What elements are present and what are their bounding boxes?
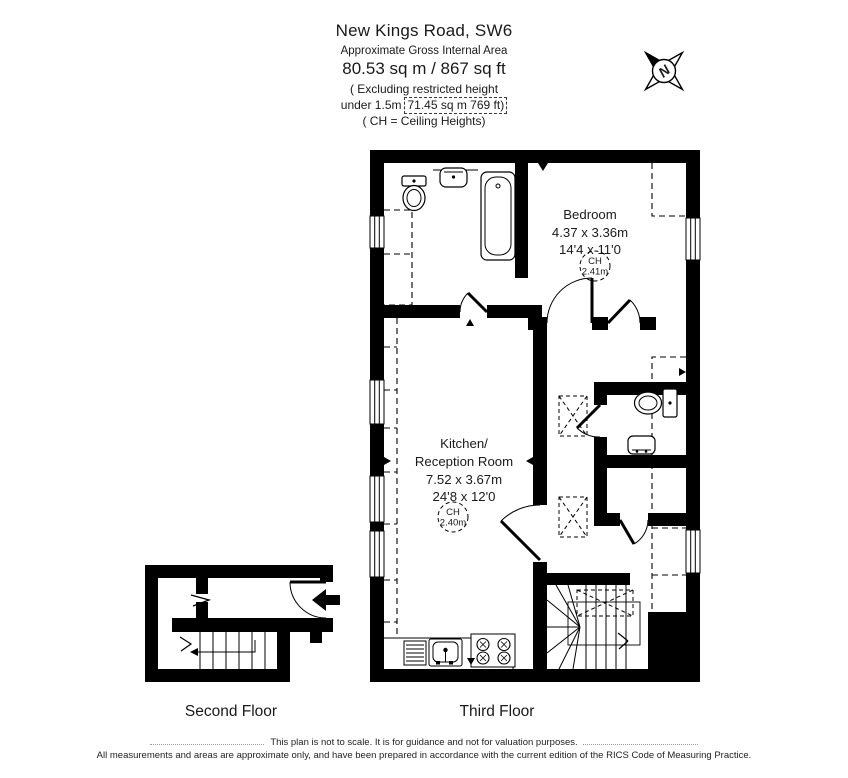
kitchen-dimensions-metric: 7.52 x 3.67m [426, 472, 502, 487]
window-icon [370, 216, 384, 248]
plan-header: New Kings Road, SW6 Approximate Gross In… [0, 21, 848, 129]
svg-text:CH: CH [588, 256, 602, 267]
second-floor-plan [145, 565, 340, 682]
disclaimer-line2: All measurements and areas are approxima… [0, 749, 848, 762]
lobby-door [608, 300, 640, 323]
window-icon [370, 531, 384, 577]
bathroom-fixtures [402, 168, 515, 260]
basin-icon [433, 168, 478, 187]
bedroom-dimensions-imperial: 14'4 x 11'0 [559, 242, 621, 257]
svg-text:2.40m: 2.40m [440, 518, 466, 529]
kitchen-sink-icon [429, 639, 462, 666]
hatched-void-markers [559, 396, 587, 537]
stair-break-line [180, 637, 191, 651]
staircase-third-floor [547, 585, 640, 669]
plan-total-area: 80.53 sq m / 867 sq ft [0, 59, 848, 79]
disclaimer-line1: This plan is not to scale. It is for gui… [265, 737, 582, 748]
plan-subtitle: Approximate Gross Internal Area [0, 45, 848, 57]
kitchen-door [501, 505, 540, 560]
plan-note-line2-prefix: under 1.5m [341, 98, 402, 112]
floorplan-page: New Kings Road, SW6 Approximate Gross In… [0, 0, 848, 778]
plan-note-line1: ( Excluding restricted height [0, 82, 848, 97]
disclaimer: This plan is not to scale. It is for gui… [0, 736, 848, 762]
stair-direction-arrow [190, 648, 198, 656]
wc-door [577, 405, 600, 437]
kitchen-dimensions-imperial: 24'8 x 12'0 [433, 489, 496, 504]
svg-text:2.41m: 2.41m [582, 267, 608, 278]
window-icon [370, 380, 384, 424]
window-icon [686, 530, 700, 573]
page-title: New Kings Road, SW6 [0, 21, 848, 41]
kitchen-name-line2: Reception Room [415, 454, 513, 469]
window-icon [370, 476, 384, 522]
third-floor-plan: Bedroom 4.37 x 3.36m 14'4 x 11'0 CH 2.41… [370, 150, 700, 682]
window-icon [686, 218, 700, 260]
entry-arrow-icon [312, 589, 340, 611]
third-floor-label: Third Floor [460, 703, 535, 720]
dishwasher-icon [404, 641, 426, 665]
bedroom-door [547, 278, 592, 323]
hob-icon [471, 634, 515, 667]
kitchen-fixtures [384, 634, 515, 669]
bathtub-icon [481, 172, 515, 260]
svg-text:CH: CH [446, 507, 460, 518]
restricted-area-boxed-value: 71.45 sq m 769 ft) [404, 97, 507, 114]
toilet-icon [402, 176, 426, 211]
bedroom-name: Bedroom [563, 207, 617, 222]
staircase-second-floor [180, 632, 265, 669]
bathroom-door [460, 293, 487, 312]
inner-walls [384, 163, 686, 669]
kitchen-ceiling-height-badge: CH 2.40m [438, 502, 468, 532]
store-room-door [620, 520, 648, 544]
plan-note-line2: under 1.5m71.45 sq m 769 ft) [0, 97, 848, 114]
bedroom-dimensions-metric: 4.37 x 3.36m [552, 225, 628, 240]
wc-fixtures [628, 389, 677, 454]
second-floor-label: Second Floor [185, 703, 277, 720]
plan-note-line3: ( CH = Ceiling Heights) [0, 114, 848, 129]
wc-basin-icon [628, 436, 655, 454]
kitchen-name-line1: Kitchen/ [440, 436, 488, 451]
